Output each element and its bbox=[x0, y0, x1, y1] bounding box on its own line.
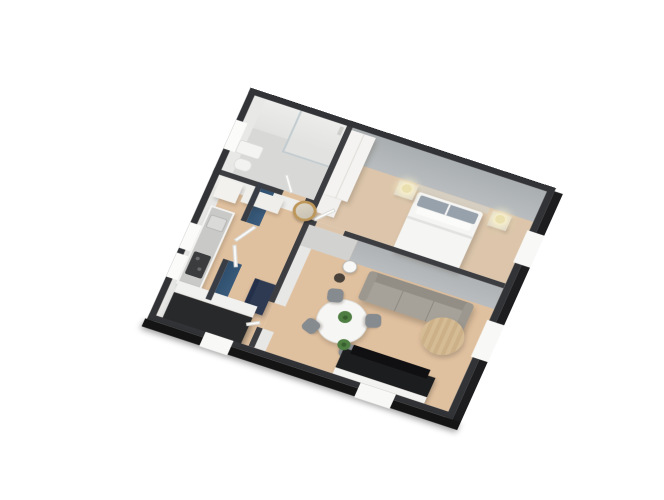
floorplan-render-canvas bbox=[0, 0, 664, 500]
dining-chair-1 bbox=[327, 288, 345, 303]
burner-1 bbox=[195, 256, 200, 260]
apartment-plan bbox=[147, 88, 556, 420]
tv-plant-core bbox=[341, 342, 347, 348]
dining-chair-2 bbox=[365, 314, 381, 328]
sofa-seam-1 bbox=[394, 291, 404, 311]
burner-2 bbox=[197, 267, 202, 271]
